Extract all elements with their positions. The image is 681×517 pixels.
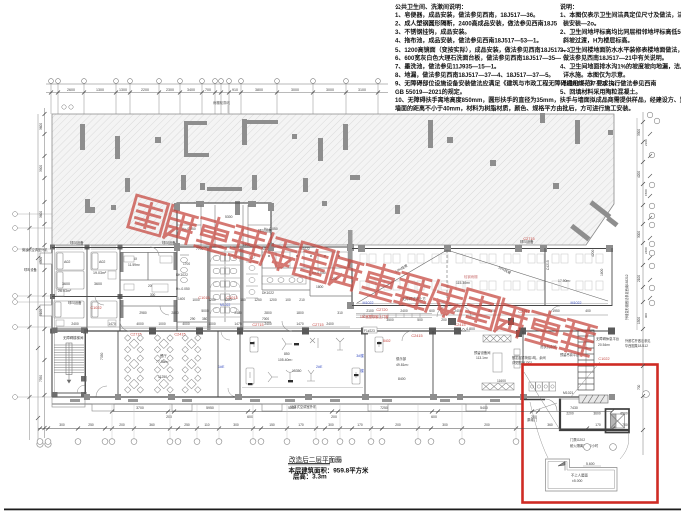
svg-text:C2415: C2415 [411,334,422,338]
svg-text:26.03m²: 26.03m² [58,289,72,293]
svg-text:3000: 3000 [291,88,299,92]
svg-text:华西图集18J112: 华西图集18J112 [625,343,648,348]
svg-text:7000: 7000 [262,317,269,321]
svg-text:300: 300 [233,423,239,427]
svg-text:300: 300 [442,423,448,427]
svg-text:3600: 3600 [62,282,70,286]
svg-text:C2415: C2415 [454,323,465,327]
svg-text:3800: 3800 [255,88,263,92]
svg-text:7250: 7250 [380,406,388,410]
svg-text:5、回填材料采用陶粒混凝土。: 5、回填材料采用陶粒混凝土。 [560,88,641,96]
svg-text:380: 380 [202,317,208,321]
svg-text:5950: 5950 [206,406,214,410]
svg-text:详水施。本图仅为示意。: 详水施。本图仅为示意。 [563,71,629,79]
svg-text:180: 180 [240,298,246,302]
svg-text:2400: 2400 [264,322,272,326]
svg-text:1、本图仅表示卫生间洁具定位尺寸及做法，洁具均为成品: 1、本图仅表示卫生间洁具定位尺寸及做法，洁具均为成品 [560,11,681,19]
svg-text:700: 700 [205,88,211,92]
svg-text:18J517—37—2、3、: 18J517—37—2、3、 [563,81,620,87]
svg-text:3600: 3600 [39,211,43,218]
svg-text:C2715: C2715 [252,323,263,327]
svg-text:900: 900 [644,313,648,318]
svg-text:600: 600 [431,415,437,419]
svg-text:呼叫设备: 呼叫设备 [70,240,84,245]
svg-text:DK1022: DK1022 [176,273,188,277]
svg-text:3、不锈钢挂钩，成品安装。: 3、不锈钢挂钩，成品安装。 [395,28,470,36]
svg-text:1000: 1000 [208,322,216,326]
svg-text:无障碍休息平台: 无障碍休息平台 [596,336,620,341]
svg-text:A02: A02 [64,260,70,264]
svg-text:公共卫生间、洗漱间说明：: 公共卫生间、洗漱间说明： [395,3,467,11]
svg-text:5.600: 5.600 [586,462,595,466]
svg-text:4000: 4000 [182,322,190,326]
svg-text:3400: 3400 [187,88,195,92]
svg-text:3700: 3700 [136,406,144,410]
svg-text:C1022: C1022 [598,357,609,361]
svg-text:M1022: M1022 [220,303,230,307]
svg-text:2400: 2400 [71,322,79,326]
svg-text:7350: 7350 [39,375,43,382]
svg-text:910: 910 [232,88,238,92]
svg-text:1950: 1950 [552,309,560,313]
svg-text:200: 200 [441,318,447,322]
svg-text:H=-0.050: H=-0.050 [264,227,278,231]
svg-text:GB 55019—2021的规定。: GB 55019—2021的规定。 [395,88,466,96]
svg-text:额定起重荷载1吨，余间: 额定起重荷载1吨，余间 [512,355,546,360]
svg-text:360: 360 [547,423,553,427]
svg-text:210: 210 [299,298,305,302]
svg-text:1000: 1000 [158,322,166,326]
svg-text:5、1200高镜面（变按实际），成品安装，做法参见西南18J: 5、1200高镜面（变按实际），成品安装，做法参见西南18J517—3 [395,46,571,54]
svg-text:1250: 1250 [254,298,262,302]
svg-text:5300: 5300 [225,215,233,219]
svg-text:说明：: 说明： [560,3,578,11]
svg-text:250: 250 [184,423,190,427]
svg-text:3900: 3900 [39,165,43,172]
svg-text:1475: 1475 [234,322,242,326]
svg-text:外廊栏杆做法参见: 外廊栏杆做法参见 [625,338,651,343]
svg-text:H=-0.050: H=-0.050 [176,287,190,291]
svg-text:4、拖布池，成品安装，做法参见西南18J517—53—1。: 4、拖布池，成品安装，做法参见西南18J517—53—1。 [395,36,542,44]
svg-text:8402: 8402 [383,339,391,343]
svg-text:2100: 2100 [366,309,374,313]
svg-text:310: 310 [337,311,343,315]
svg-text:49.81m²: 49.81m² [396,363,409,367]
svg-text:600: 600 [429,309,435,313]
svg-text:7、墨洗池，做法参见11J935—15—1。: 7、墨洗池，做法参见11J935—15—1。 [395,63,500,71]
svg-text:200: 200 [531,415,537,419]
svg-text:1200: 1200 [269,298,277,302]
svg-text:2980: 2980 [139,311,147,315]
svg-text:C2715: C2715 [523,237,534,241]
svg-text:110: 110 [204,423,209,427]
svg-text:250: 250 [88,423,94,427]
svg-text:850: 850 [284,352,290,356]
svg-text:3600: 3600 [593,412,601,416]
svg-text:113.1m²: 113.1m² [476,356,489,360]
svg-text:2600: 2600 [67,88,75,92]
svg-text:DK1022: DK1022 [262,291,274,295]
svg-text:300: 300 [150,293,156,297]
svg-text:300: 300 [59,423,65,427]
svg-text:无障碍楼梯间: 无障碍楼梯间 [63,335,84,340]
svg-text:600: 600 [247,415,253,419]
svg-text:105.40m²: 105.40m² [278,358,293,362]
svg-text:2300: 2300 [166,88,174,92]
svg-text:1800: 1800 [296,311,304,315]
svg-text:C2720: C2720 [376,308,387,312]
svg-text:1400: 1400 [178,297,185,301]
svg-text:做法参见西南18J517—21中有关说明。: 做法参见西南18J517—21中有关说明。 [562,54,668,62]
svg-text:4.800: 4.800 [466,327,475,331]
svg-text:700: 700 [637,384,641,390]
svg-text:11.59m²: 11.59m² [128,263,141,267]
svg-text:11250: 11250 [158,375,167,379]
svg-text:500: 500 [417,318,423,322]
svg-text:4200: 4200 [637,171,641,178]
svg-text:6、600宽灰白色大理石洗面台板，做法参见西南18J517—: 6、600宽灰白色大理石洗面台板，做法参见西南18J517—35— [395,54,561,62]
svg-text:290: 290 [190,317,196,321]
svg-text:3000: 3000 [637,231,641,238]
svg-text:170: 170 [595,423,601,427]
svg-text:2100: 2100 [644,139,648,146]
svg-text:77.36m²: 77.36m² [156,360,169,364]
svg-text:斜坡过渡，H为楼层标高。: 斜坡过渡，H为楼层标高。 [562,36,633,44]
svg-text:不上人屋面: 不上人屋面 [571,473,589,478]
svg-text:6500: 6500 [620,412,628,416]
svg-text:俱乐部: 俱乐部 [396,356,407,361]
svg-text:门禁G202: 门禁G202 [570,437,585,442]
svg-text:餐厅: 餐厅 [160,353,167,358]
svg-text:360: 360 [149,423,155,427]
svg-text:1300: 1300 [119,88,127,92]
svg-text:5100: 5100 [39,309,43,316]
svg-text:1500: 1500 [644,189,648,196]
svg-text:2200: 2200 [141,88,149,92]
svg-text:C4215: C4215 [546,260,550,270]
svg-text:11600: 11600 [497,379,506,383]
svg-text:雨棚轮廓线: 雨棚轮廓线 [213,100,231,105]
svg-text:5950: 5950 [288,406,296,410]
svg-text:M1022: M1022 [363,301,374,305]
svg-text:4、卫生间地面排水沟1%的坡度坡向地漏，洁具具体位: 4、卫生间地面排水沟1%的坡度坡向地漏，洁具具体位 [560,63,681,71]
svg-text:1、皂便器，成品安装，做法参见西南，18J517—36。: 1、皂便器，成品安装，做法参见西南，18J517—36。 [395,11,539,19]
svg-text:5400: 5400 [480,406,488,410]
svg-text:400: 400 [585,309,591,313]
svg-text:层高：3.3m: 层高：3.3m [293,472,327,481]
svg-text:200: 200 [484,423,490,427]
svg-text:5000: 5000 [201,309,209,313]
svg-text:2400: 2400 [326,322,334,326]
svg-text:170: 170 [357,423,363,427]
svg-text:2800: 2800 [264,311,272,315]
svg-text:1470: 1470 [296,322,304,326]
svg-text:3000: 3000 [326,88,334,92]
svg-text:C2715: C2715 [312,323,323,327]
svg-text:M1022: M1022 [571,301,582,305]
svg-text:2800: 2800 [171,311,179,315]
svg-text:1500: 1500 [637,317,641,324]
svg-text:装安装—2o。: 装安装—2o。 [562,20,600,28]
svg-text:200: 200 [331,415,337,419]
svg-text:2480: 2480 [234,311,242,315]
svg-text:17.90m²: 17.90m² [558,279,571,283]
svg-text:±5.000: ±5.000 [572,479,582,483]
svg-text:C1015: C1015 [198,296,209,300]
svg-text:1800: 1800 [600,268,604,276]
svg-text:4200: 4200 [591,249,595,257]
svg-text:轻钢雨棚: 轻钢雨棚 [464,274,478,279]
svg-text:4500: 4500 [39,257,43,264]
svg-text:200: 200 [119,423,125,427]
svg-text:3300: 3300 [637,129,641,136]
svg-text:15350: 15350 [292,369,302,373]
svg-text:300: 300 [328,423,334,427]
svg-text:150宽塑钢窗上门窗: 150宽塑钢窗上门窗 [360,314,389,319]
svg-text:115.30m²: 115.30m² [456,281,471,285]
svg-text:3、卫生间楼地面防水水平装修表楼地面做法，卫生间墙面: 3、卫生间楼地面防水水平装修表楼地面做法，卫生间墙面 [560,46,681,54]
svg-text:3600: 3600 [94,282,102,286]
svg-text:1:100: 1:100 [331,458,343,463]
svg-text:150: 150 [269,423,275,427]
svg-text:M1021: M1021 [563,391,573,395]
svg-text:3100: 3100 [358,88,366,92]
svg-text:呼叫设备: 呼叫设备 [24,267,38,272]
svg-text:预留设备间: 预留设备间 [474,350,490,355]
svg-text:8、地漏，做法参见西南18J517—37—4、18J517—: 8、地漏，做法参见西南18J517—37—4、18J517—37—5。 [395,71,554,79]
svg-text:A02: A02 [99,260,105,264]
svg-text:3600: 3600 [39,123,43,130]
svg-text:7350: 7350 [100,352,104,360]
svg-text:2100: 2100 [637,275,641,282]
svg-text:19.03m²: 19.03m² [93,271,107,275]
svg-text:呼叫设备: 呼叫设备 [68,300,82,305]
svg-text:1300: 1300 [96,88,104,92]
svg-text:10、无障碍扶手离地高度850mm，圆形扶手的直径为35mm: 10、无障碍扶手离地高度850mm，圆形扶手的直径为35mm，扶手与墙面拟成品商… [395,96,681,104]
svg-text:1#E: 1#E [218,365,225,369]
svg-text:1470: 1470 [108,322,116,326]
svg-text:7430: 7430 [570,406,578,410]
svg-text:墙面的距离不小于40mm，材料为树脂材质，颜色、规格平方由批: 墙面的距离不小于40mm，材料为树脂材质，颜色、规格平方由批后，方可进行施工安装… [395,105,634,113]
svg-text:F1#223: F1#223 [364,329,375,333]
svg-text:200: 200 [395,423,401,427]
svg-text:20.54m²: 20.54m² [598,343,611,347]
svg-text:3#楼: 3#楼 [356,353,364,358]
svg-text:170: 170 [298,423,304,427]
svg-text:8400: 8400 [398,377,406,381]
svg-text:2#E: 2#E [316,365,323,369]
svg-text:2400: 2400 [400,309,408,313]
svg-text:1800: 1800 [316,285,324,289]
svg-text:100: 100 [285,298,291,302]
svg-text:4000: 4000 [136,322,144,326]
svg-text:外墙变形缝做法参见西南18J212: 外墙变形缝做法参见西南18J212 [624,274,629,320]
svg-text:2、成人塑钢圆形隔断，2400高成品安装，做法参见西南18J: 2、成人塑钢圆形隔断，2400高成品安装，做法参见西南18J5 [395,20,558,28]
svg-text:C1022: C1022 [90,306,101,310]
svg-text:700: 700 [622,423,628,427]
svg-text:2200: 2200 [566,412,574,416]
svg-text:200: 200 [166,415,172,419]
svg-text:C1013: C1013 [226,296,237,300]
svg-text:2、卫生间地坪标高均比同层相邻地坪标高低50，入口处: 2、卫生间地坪标高均比同层相邻地坪标高低50，入口处 [560,28,681,36]
svg-text:2400: 2400 [644,247,648,254]
